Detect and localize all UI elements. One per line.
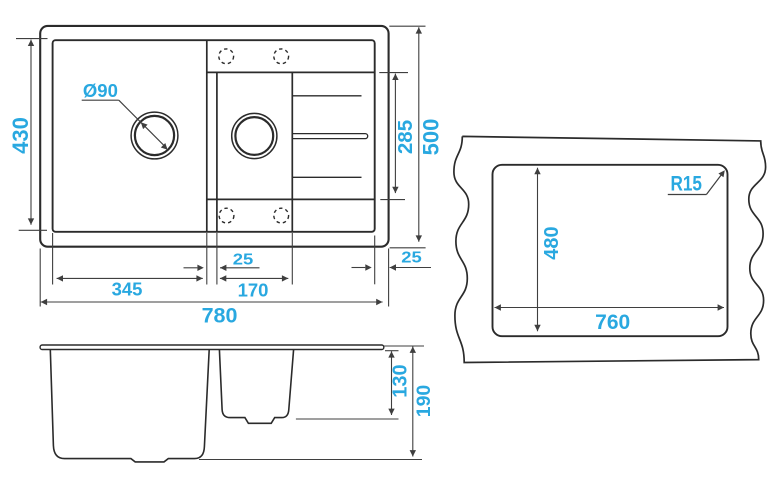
- svg-text:345: 345: [112, 279, 143, 300]
- svg-text:500: 500: [419, 119, 444, 156]
- svg-text:480: 480: [541, 226, 563, 259]
- svg-text:285: 285: [394, 120, 417, 154]
- svg-text:25: 25: [233, 251, 254, 268]
- svg-text:780: 780: [202, 304, 238, 328]
- svg-text:130: 130: [390, 364, 412, 397]
- svg-text:430: 430: [8, 117, 33, 154]
- svg-text:170: 170: [238, 280, 269, 301]
- svg-text:760: 760: [595, 311, 630, 334]
- svg-text:190: 190: [413, 385, 435, 418]
- svg-text:25: 25: [401, 249, 422, 266]
- svg-text:R15: R15: [670, 173, 702, 196]
- svg-text:Ø90: Ø90: [83, 80, 118, 101]
